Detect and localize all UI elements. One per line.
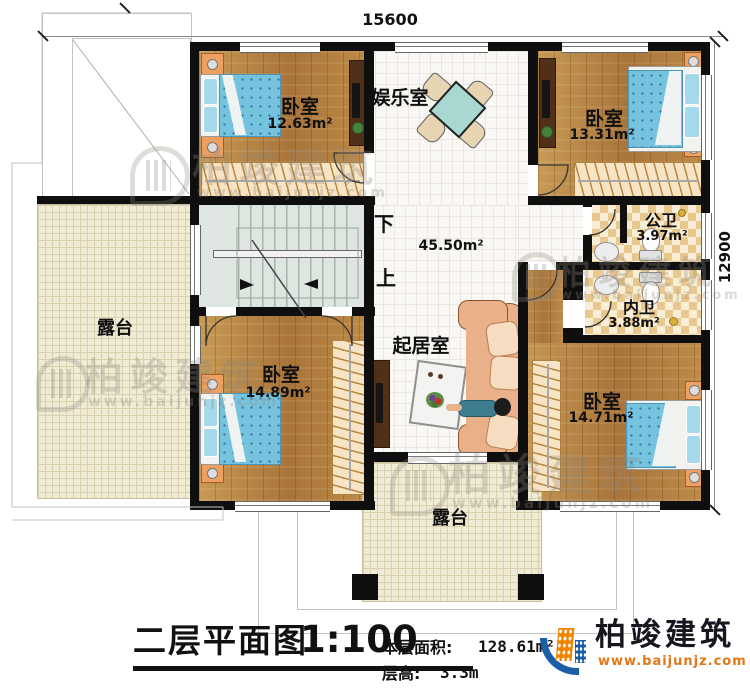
bedroom1-plant-icon <box>352 122 364 134</box>
person-legs <box>446 404 462 411</box>
bedroom3-wardrobe <box>332 340 365 495</box>
dimension-right-value: 12900 <box>718 231 733 283</box>
wall-bath-bottom <box>563 335 701 343</box>
terrace-bottom-label: 露台 <box>432 510 468 528</box>
terrace-pillar-right <box>518 574 544 600</box>
person-figure <box>458 400 498 417</box>
public-bath-label: 公卫 <box>645 213 677 229</box>
terrace-left-floor <box>37 204 192 499</box>
bedroom3-area: 14.89m² <box>245 386 310 400</box>
watermark-logo-icon4 <box>390 456 450 516</box>
dim-tick-right-top <box>709 36 720 47</box>
bedroom4-pillow2 <box>686 435 701 464</box>
bedroom2-window-top <box>562 42 648 53</box>
dim-tick-eave <box>119 2 130 13</box>
wall-bedroom2-left <box>528 42 538 165</box>
bedroom1-tv <box>352 83 360 118</box>
bedroom1-area: 12.63m² <box>267 117 332 131</box>
bedroom1-nightstand-top <box>201 53 224 75</box>
ensuite-bath-door-opening <box>563 300 583 328</box>
public-bath-area: 3.97m² <box>636 230 687 243</box>
watermark-logo-icon <box>130 146 190 206</box>
bedroom2-pillow2 <box>684 106 700 138</box>
watermark-url: www.baijunjz.com <box>197 186 388 200</box>
person-head <box>494 398 511 416</box>
title-underline <box>133 666 473 671</box>
bedroom2-window-right <box>701 75 712 160</box>
watermark-text3: 柏竣建筑 <box>558 256 718 289</box>
stair-down-label: 下 <box>374 214 394 234</box>
bedroom2-door-opening <box>528 165 538 196</box>
bedroom1-window <box>240 42 320 53</box>
plan-title: 二层平面图 <box>133 624 308 657</box>
dimension-line-top <box>42 36 723 37</box>
watermark-url4: www.baijunjz.com <box>452 496 653 511</box>
bedroom2-wardrobe <box>574 162 702 197</box>
dimension-top-value: 15600 <box>330 12 450 28</box>
living-label: 起居室 <box>392 337 449 356</box>
brand-name: 柏竣建筑 <box>595 620 735 651</box>
floor-height-label: 层高: <box>382 666 420 682</box>
terrace-pillar-left <box>352 574 378 600</box>
public-bath-door-opening <box>583 207 592 235</box>
entertainment-label: 娱乐室 <box>371 89 428 108</box>
floor-height-value: 3.3m <box>440 665 479 681</box>
watermark-logo-icon3 <box>512 252 562 302</box>
bedroom2-plant-icon <box>541 126 553 138</box>
bedroom3-window <box>235 501 330 512</box>
bedroom2-tv <box>542 80 550 118</box>
wall-vanity-divider <box>620 205 627 243</box>
bedroom3-nightstand-bottom <box>201 463 224 483</box>
bedroom1-pillow2 <box>203 106 218 133</box>
dim-tick-right-bottom <box>709 504 720 515</box>
wall-living-bottom-left <box>364 452 408 462</box>
bedroom3-door-opening-left <box>206 307 236 316</box>
stair-handrail <box>213 250 362 258</box>
ensuite-bath-fixture-dot <box>669 317 678 326</box>
bedroom3-label: 卧室 <box>262 366 300 385</box>
bedroom2-area: 13.31m² <box>569 128 634 142</box>
brand-url: www.baijunjz.com <box>598 655 747 668</box>
public-bath-fixture-dot <box>678 209 686 217</box>
sofa-cushion1 <box>485 320 521 358</box>
sofa-cushion3 <box>484 412 521 451</box>
watermark-text4: 柏竣建筑 <box>448 455 648 498</box>
watermark-text: 柏竣建筑 <box>192 148 380 188</box>
stair-terrace-window <box>190 225 201 295</box>
bedroom4-window-right <box>701 390 712 470</box>
bedroom3-pillow2 <box>203 428 218 457</box>
entertainment-floor <box>364 51 528 205</box>
bedroom4-area: 14.71m² <box>568 411 633 425</box>
living-area-value: 45.50m² <box>418 239 483 253</box>
entertainment-window <box>395 42 488 53</box>
watermark-text2: 柏竣建筑 <box>85 358 265 396</box>
bedroom1-pillow <box>203 78 218 105</box>
bedroom3-door-opening-right <box>322 307 352 316</box>
terrace-left-label: 露台 <box>97 320 133 338</box>
floor-plan-canvas: 柏竣建筑 www.baijunjz.com 柏竣建筑 www.baijunjz.… <box>0 0 750 694</box>
watermark-logo-icon2 <box>36 356 90 412</box>
bedroom2-pillow <box>684 73 700 105</box>
ensuite-bath-area: 3.88m² <box>608 317 659 330</box>
stair-up-label: 上 <box>376 268 396 288</box>
bedroom4-pillow <box>686 405 701 434</box>
coffee-table-cups-icon2 <box>438 374 443 379</box>
brand-logo-icon <box>540 628 590 674</box>
wall-bedroom2-bottom <box>528 196 710 205</box>
floor-area-label: 本层面积: <box>382 640 452 656</box>
ensuite-bath-label: 内卫 <box>623 300 655 316</box>
dimension-line-right <box>714 42 715 510</box>
living-tv <box>376 383 383 423</box>
bedroom1-label: 卧室 <box>281 98 319 117</box>
coffee-table-cups-icon <box>428 372 433 377</box>
